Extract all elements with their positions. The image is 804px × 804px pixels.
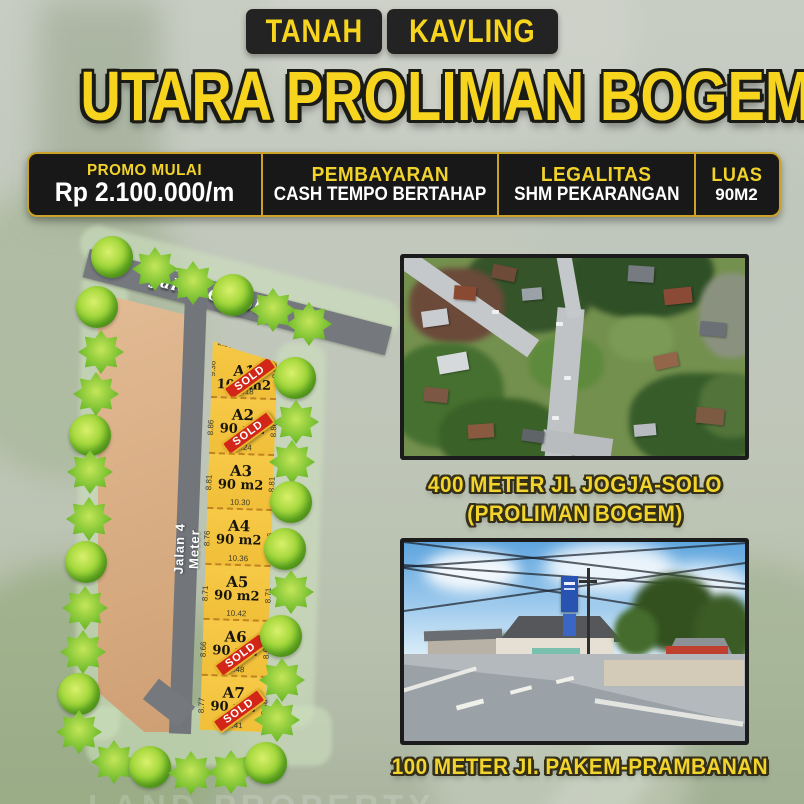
aerial-caption: 400 METER JI. JOGJA-SOLO (PROLIMAN BOGEM… <box>392 470 759 528</box>
aerial-foliage-blob <box>699 273 749 358</box>
flyer-root: TANAH KAVLING UTARA PROLIMAN BOGEM PROMO… <box>0 0 804 804</box>
top-badge-title: TANAH KAVLING <box>0 9 804 54</box>
badge-word-plate: TANAH <box>246 9 383 54</box>
plot-A6: 8.66 8.66 A6 90 m2 10.48 SOLD <box>202 618 269 676</box>
plot-A7: 8.77 8.48 A7 90 m2 10.41 SOLD <box>200 674 267 732</box>
tree-icon <box>65 541 107 583</box>
plot-area: 90 m2 <box>208 478 273 495</box>
aerial-car <box>492 310 499 314</box>
info-area: LUAS 90M2 <box>694 154 777 215</box>
tree-icon <box>69 414 111 456</box>
info-payment: PEMBAYARAN CASH TEMPO BERTAHAP <box>261 154 497 215</box>
dimension: 8.81 <box>204 475 214 491</box>
street-photo <box>400 538 749 745</box>
legal-value: SHM PEKARANGAN <box>514 185 679 204</box>
payment-label: PEMBAYARAN <box>311 165 448 185</box>
dimension: 8.66 <box>199 641 209 657</box>
promo-value: Rp 2.100.000/m <box>55 179 235 207</box>
aerial-rooftop <box>522 287 543 301</box>
dimension: 8.86 <box>206 419 216 435</box>
watermark: LAND PROPERTY <box>88 788 435 804</box>
tree-icon <box>129 746 171 788</box>
aerial-rooftop <box>699 321 726 337</box>
info-legal: LEGALITAS SHM PEKARANGAN <box>497 154 694 215</box>
aerial-rooftop <box>627 265 654 283</box>
aerial-rooftop <box>423 387 448 403</box>
aerial-car <box>556 322 563 326</box>
plot-id: A3 <box>208 454 274 480</box>
plots-column: 2.95 6.12 9.36 8.92 A1 100 m2 10.18 SOLD… <box>200 336 278 732</box>
plot-A2: 8.86 8.86 A2 90 m2 10.24 SOLD <box>209 396 276 454</box>
dimension: 9.36 <box>208 360 218 376</box>
badge-word: KAVLING <box>410 13 536 50</box>
aerial-caption-line2: (PROLIMAN BOGEM) <box>392 499 759 528</box>
tree-icon <box>76 286 118 328</box>
street-caption: 100 METER JI. PAKEM-PRAMBANAN <box>392 752 759 781</box>
tree-icon <box>274 357 316 399</box>
info-promo: PROMO MULAI Rp 2.100.000/m <box>29 154 261 215</box>
aerial-rooftop <box>695 407 725 426</box>
plot-id: A5 <box>205 565 271 591</box>
tree-icon <box>264 528 306 570</box>
tree-icon <box>212 274 254 316</box>
dimension: 8.77 <box>197 697 207 713</box>
tree-icon <box>91 236 133 278</box>
plot-A5: 8.71 8.71 A5 90 m2 10.42 <box>204 563 271 620</box>
badge-word-plate: KAVLING <box>387 9 558 54</box>
aerial-foliage-blob <box>574 254 714 318</box>
dimension: 8.76 <box>202 530 212 546</box>
aerial-photo <box>400 254 749 460</box>
payment-value: CASH TEMPO BERTAHAP <box>274 185 486 204</box>
plot-area: 90 m2 <box>204 589 269 606</box>
tree-icon <box>270 481 312 523</box>
page-title: UTARA PROLIMAN BOGEM <box>80 60 723 134</box>
plot-A3: 8.81 8.81 A3 90 m2 10.30 <box>207 452 274 509</box>
aerial-rooftop <box>453 285 476 301</box>
aerial-rooftop <box>663 287 693 306</box>
dimension: 8.71 <box>200 586 210 602</box>
plot-id: A4 <box>206 509 272 535</box>
tree-icon <box>58 673 100 715</box>
road-jalan-4-meter-label: Jalan 4 Meter <box>170 501 203 596</box>
aerial-caption-line1: 400 METER JI. JOGJA-SOLO <box>392 470 759 499</box>
info-bar: PROMO MULAI Rp 2.100.000/m PEMBAYARAN CA… <box>27 152 781 217</box>
street-caption-line1: 100 METER JI. PAKEM-PRAMBANAN <box>392 752 759 781</box>
badge-word: TANAH <box>265 13 362 50</box>
aerial-rooftop <box>468 423 495 439</box>
area-label: LUAS <box>711 166 762 185</box>
aerial-car <box>552 416 559 420</box>
aerial-foliage-blob <box>699 373 749 438</box>
area-value: 90M2 <box>715 186 758 203</box>
plot-area: 90 m2 <box>206 533 271 550</box>
aerial-car <box>564 376 571 380</box>
tree-icon <box>245 742 287 784</box>
site-plan: Jalan Corblok Jalan 4 Meter 2.95 6.12 9.… <box>0 220 400 804</box>
plot-A4: 8.76 8.76 A4 90 m2 10.36 <box>205 507 272 565</box>
legal-label: LEGALITAS <box>541 165 652 185</box>
tree-icon <box>260 615 302 657</box>
aerial-rooftop <box>634 423 657 437</box>
plot-A1: 2.95 6.12 9.36 8.92 A1 100 m2 10.18 SOLD <box>211 336 278 398</box>
